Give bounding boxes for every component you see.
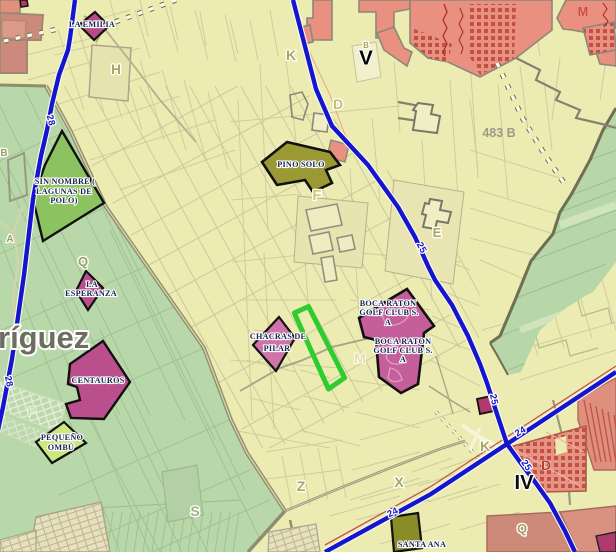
svg-text:P: P <box>27 403 36 419</box>
svg-text:LA: LA <box>86 280 98 289</box>
svg-text:A: A <box>6 234 13 245</box>
svg-text:B: B <box>0 148 7 159</box>
svg-text:E: E <box>433 225 442 240</box>
svg-text:PINO SOLO: PINO SOLO <box>277 160 325 169</box>
svg-text:D: D <box>333 96 343 112</box>
svg-text:SIN NOMBRE (: SIN NOMBRE ( <box>35 177 95 186</box>
svg-text:CHACRAS DE: CHACRAS DE <box>250 332 307 341</box>
svg-text:PILAR: PILAR <box>264 344 291 353</box>
svg-text:A: A <box>400 355 406 364</box>
svg-text:A: A <box>385 318 391 327</box>
svg-text:OMBÚ: OMBÚ <box>48 442 74 452</box>
svg-text:LA EMILIA: LA EMILIA <box>69 20 115 29</box>
svg-text:GOLF CLUB S.: GOLF CLUB S. <box>359 308 418 317</box>
svg-text:ESPERANZA: ESPERANZA <box>65 289 117 298</box>
svg-text:Q: Q <box>517 521 527 536</box>
svg-text:Z: Z <box>297 478 306 494</box>
svg-text:ríguez: ríguez <box>0 320 89 355</box>
svg-text:K: K <box>480 438 490 454</box>
svg-text:X: X <box>394 474 404 490</box>
svg-text:M: M <box>578 5 588 19</box>
svg-text:POLO): POLO) <box>50 196 77 205</box>
svg-text:V: V <box>359 47 373 70</box>
svg-text:F: F <box>312 187 321 204</box>
svg-text:28: 28 <box>2 375 15 388</box>
svg-text:D: D <box>541 457 551 473</box>
svg-text:BOCA RATON: BOCA RATON <box>375 337 432 346</box>
svg-text:K: K <box>286 47 296 63</box>
svg-text:SANTA ANA: SANTA ANA <box>398 540 446 549</box>
svg-text:BOCA RATON: BOCA RATON <box>360 299 417 308</box>
svg-text:S: S <box>190 503 199 519</box>
svg-text:M: M <box>354 350 366 366</box>
svg-text:PEQUEÑO: PEQUEÑO <box>41 433 83 442</box>
svg-text:CENTAUROS: CENTAUROS <box>71 376 124 385</box>
svg-text:483 B: 483 B <box>482 126 515 140</box>
svg-text:GOLF CLUB S.: GOLF CLUB S. <box>373 346 432 355</box>
svg-text:H: H <box>111 62 121 77</box>
svg-text:Q: Q <box>78 254 88 269</box>
svg-text:LAGUNAS DE: LAGUNAS DE <box>36 187 92 196</box>
svg-text:IV: IV <box>515 472 535 494</box>
